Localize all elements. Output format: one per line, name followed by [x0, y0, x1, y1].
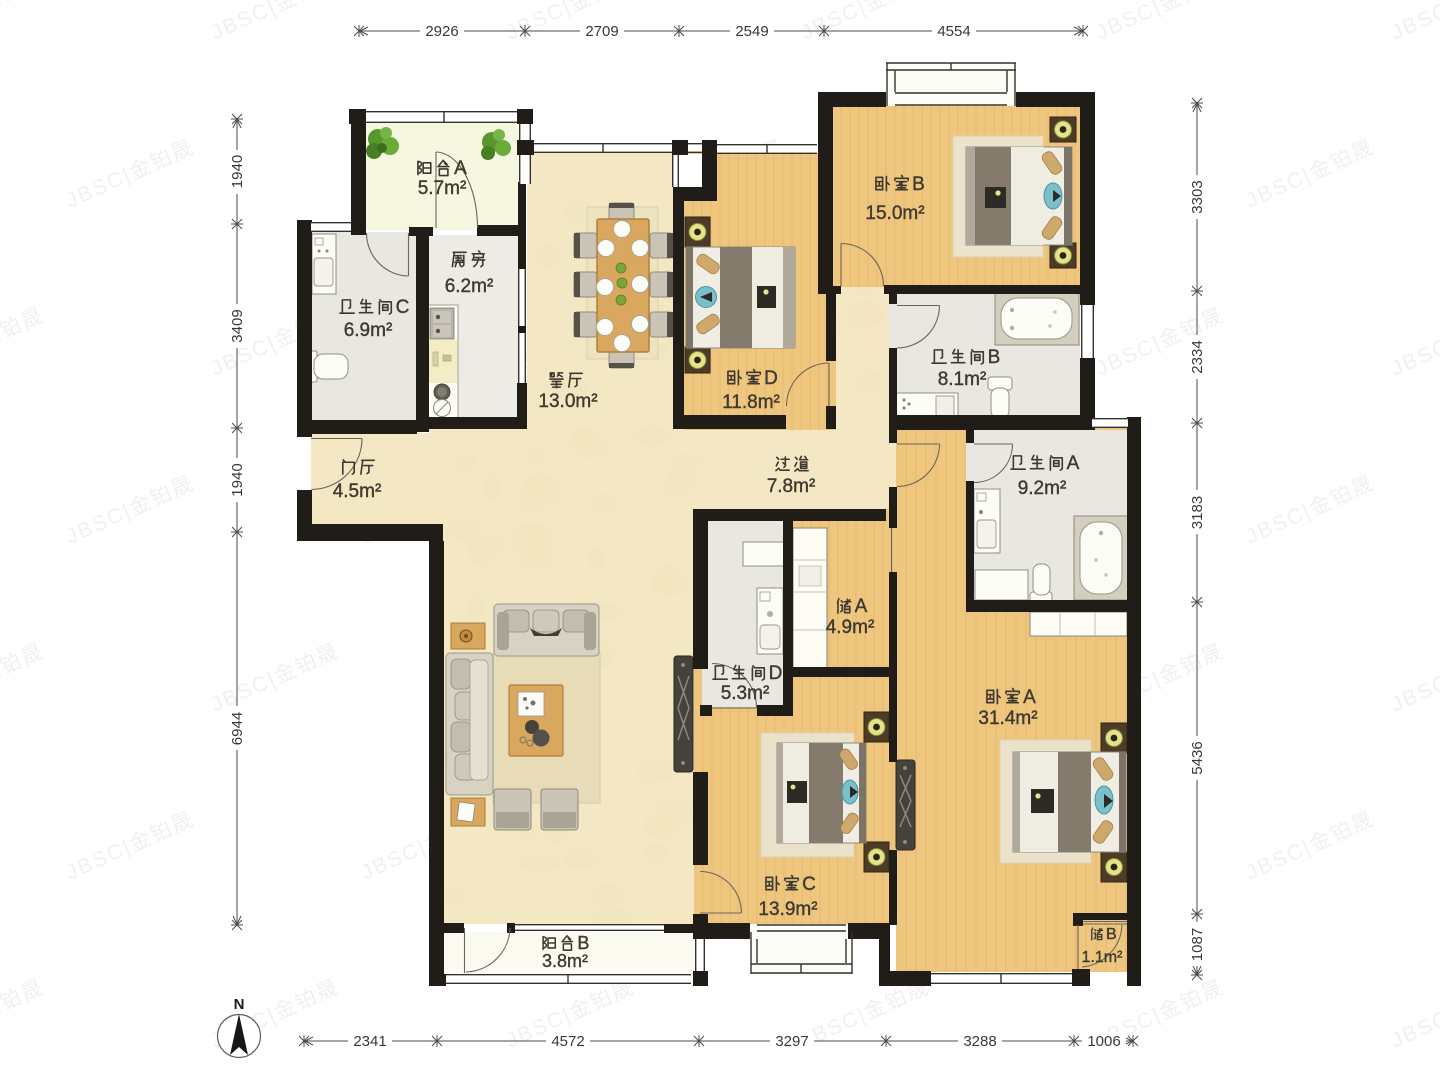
svg-text:4.5m²: 4.5m² — [333, 481, 382, 502]
svg-text:3297: 3297 — [775, 1033, 808, 1050]
svg-text:1.1m²: 1.1m² — [1082, 949, 1124, 966]
svg-text:2549: 2549 — [735, 23, 768, 40]
svg-text:6.9m²: 6.9m² — [344, 320, 393, 341]
svg-text:13.9m²: 13.9m² — [758, 899, 817, 920]
svg-text:1940: 1940 — [229, 155, 246, 188]
svg-text:5.7m²: 5.7m² — [418, 178, 467, 199]
svg-text:A: A — [1067, 453, 1080, 474]
svg-text:D: D — [764, 368, 778, 389]
svg-text:1006: 1006 — [1087, 1033, 1120, 1050]
svg-text:B: B — [577, 933, 589, 953]
svg-text:A: A — [454, 158, 467, 179]
svg-text:3288: 3288 — [963, 1033, 996, 1050]
svg-text:1087: 1087 — [1189, 928, 1206, 961]
svg-text:11.8m²: 11.8m² — [722, 392, 780, 413]
svg-text:N: N — [234, 996, 245, 1013]
svg-text:6944: 6944 — [229, 712, 246, 745]
svg-text:B: B — [1106, 926, 1117, 943]
svg-text:7.8m²: 7.8m² — [767, 476, 816, 497]
svg-text:2341: 2341 — [353, 1033, 386, 1050]
svg-text:D: D — [769, 663, 783, 684]
svg-text:3183: 3183 — [1189, 496, 1206, 529]
svg-text:3409: 3409 — [229, 309, 246, 342]
svg-text:5.3m²: 5.3m² — [721, 683, 770, 704]
svg-text:13.0m²: 13.0m² — [538, 391, 597, 412]
svg-text:15.0m²: 15.0m² — [865, 203, 924, 224]
svg-text:2709: 2709 — [585, 23, 618, 40]
svg-text:4554: 4554 — [937, 23, 970, 40]
svg-text:A: A — [1023, 687, 1036, 708]
svg-text:9.2m²: 9.2m² — [1018, 478, 1067, 499]
svg-text:C: C — [396, 297, 410, 318]
svg-text:6.2m²: 6.2m² — [445, 276, 494, 297]
svg-text:1940: 1940 — [229, 463, 246, 496]
svg-text:B: B — [988, 347, 1001, 368]
svg-text:4.9m²: 4.9m² — [826, 617, 875, 638]
svg-text:A: A — [855, 596, 868, 617]
svg-text:31.4m²: 31.4m² — [978, 708, 1037, 729]
svg-text:3.8m²: 3.8m² — [542, 951, 588, 971]
svg-text:2334: 2334 — [1189, 340, 1206, 373]
svg-text:4572: 4572 — [551, 1033, 584, 1050]
svg-text:3303: 3303 — [1189, 180, 1206, 213]
svg-text:2926: 2926 — [425, 23, 458, 40]
svg-text:8.1m²: 8.1m² — [938, 369, 987, 390]
svg-text:B: B — [912, 174, 925, 195]
svg-text:5436: 5436 — [1189, 741, 1206, 774]
svg-text:C: C — [802, 874, 816, 895]
